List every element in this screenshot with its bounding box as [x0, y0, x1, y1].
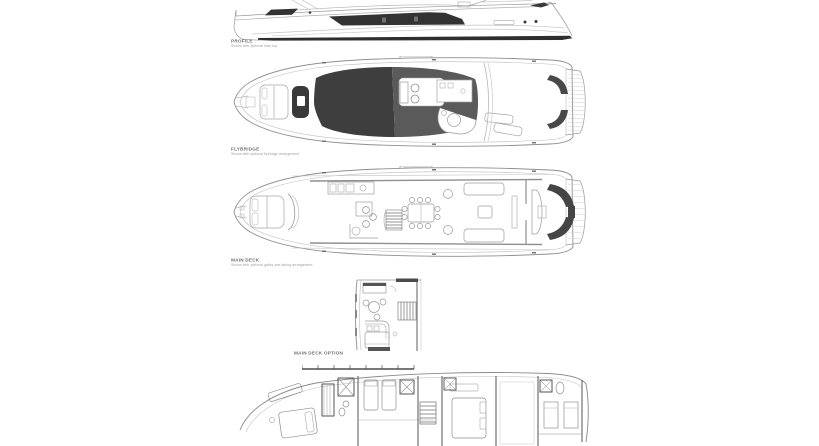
flybridge-label: FLYBRIDGE Shown with optional flybridge … — [231, 147, 362, 164]
main-deck-option-label: MAIN DECK OPTION — [294, 351, 388, 360]
main-deck-option-plan — [352, 276, 426, 352]
wet-bar — [437, 80, 472, 102]
profile-side-view-drawing — [232, 0, 590, 44]
flybridge-deck-plan — [232, 56, 590, 148]
crew-quarters — [538, 376, 582, 446]
windscreen-glazing — [292, 86, 309, 118]
master-cabin — [442, 376, 496, 446]
profile-label: PROFILE Shown with optional hard top — [231, 39, 320, 56]
lower-staircase — [420, 402, 436, 424]
lower-deck-plan — [238, 372, 592, 446]
flybridge-title: FLYBRIDGE — [231, 147, 360, 152]
twin-cabin — [358, 376, 434, 446]
main-deck-subtitle: Shown with optional galley and dining ar… — [231, 263, 386, 267]
vip-cabin — [268, 383, 318, 438]
scale-bar — [302, 364, 416, 371]
profile-dark-glazing — [258, 3, 572, 41]
main-deck-option-title: MAIN DECK OPTION — [294, 351, 387, 356]
yacht-deck-plans-page: PROFILE Shown with optional hard top — [0, 0, 819, 446]
profile-subtitle: Shown with optional hard top — [231, 44, 319, 48]
main-deck-title: MAIN DECK — [231, 258, 386, 263]
main-deck-plan — [232, 166, 590, 258]
option-furniture — [363, 283, 396, 339]
main-deck-label: MAIN DECK Shown with optional galley and… — [231, 258, 388, 275]
profile-title: PROFILE — [231, 39, 319, 44]
option-stairs — [398, 302, 416, 320]
forward-bathroom — [322, 376, 358, 446]
engine-room — [500, 382, 534, 444]
flybridge-subtitle: Shown with optional flybridge arrangemen… — [231, 152, 360, 156]
option-cabin — [365, 332, 397, 351]
